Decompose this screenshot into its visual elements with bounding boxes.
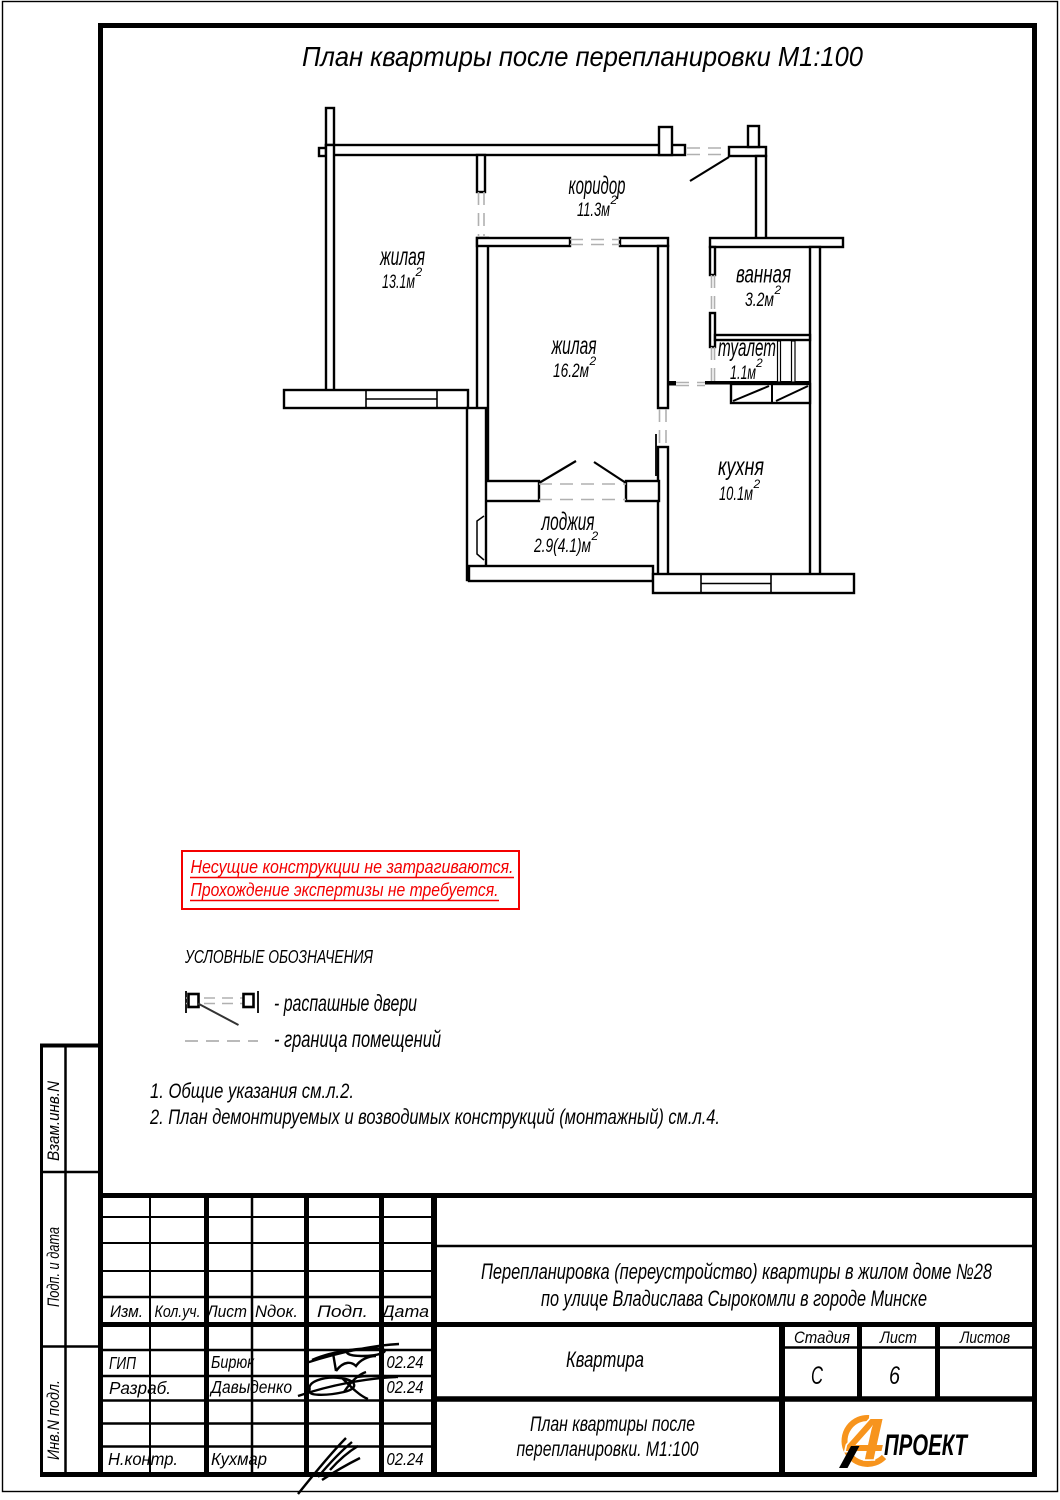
svg-text:2. План демонтируемых и возво: 2. План демонтируемых и возводимых конст… <box>149 1106 720 1129</box>
svg-text:Стадия: Стадия <box>794 1328 850 1347</box>
svg-text:Лист: Лист <box>879 1328 917 1347</box>
svg-text:перепланировки. М1:100: перепланировки. М1:100 <box>517 1438 699 1461</box>
svg-text:1.1м: 1.1м <box>730 362 756 384</box>
svg-text:Несущие конструкции не затраги: Несущие конструкции не затрагиваются. <box>191 857 514 877</box>
svg-text:Разраб.: Разраб. <box>109 1378 171 1398</box>
svg-text:13.1м: 13.1м <box>382 271 415 293</box>
svg-text:Подп.: Подп. <box>317 1303 368 1321</box>
svg-text:Листов: Листов <box>959 1328 1010 1347</box>
svg-text:ванная: ванная <box>736 261 791 289</box>
svg-text:02.24: 02.24 <box>387 1352 424 1372</box>
svg-text:Бирюк: Бирюк <box>211 1352 255 1372</box>
svg-text:ГИП: ГИП <box>109 1353 136 1373</box>
svg-text:Взам.инв.N: Взам.инв.N <box>44 1080 63 1161</box>
svg-text:6: 6 <box>889 1362 900 1390</box>
svg-text:2: 2 <box>415 265 423 279</box>
svg-text:Н.контр.: Н.контр. <box>108 1449 178 1469</box>
svg-text:Инв.N подл.: Инв.N подл. <box>44 1380 63 1460</box>
svg-text:2: 2 <box>774 283 782 297</box>
svg-text:План квартиры после перепланир: План квартиры после перепланировки М1:10… <box>302 41 864 72</box>
svg-text:11.3м: 11.3м <box>577 199 610 221</box>
svg-text:Кухмар: Кухмар <box>211 1449 267 1469</box>
svg-text:ПРОЕКТ: ПРОЕКТ <box>884 1429 969 1462</box>
svg-text:Подп. и дата: Подп. и дата <box>44 1227 63 1307</box>
svg-text:3.2м: 3.2м <box>745 289 774 311</box>
svg-text:Дата: Дата <box>380 1303 429 1321</box>
svg-text:Квартира: Квартира <box>566 1347 644 1372</box>
svg-text:2: 2 <box>755 356 763 370</box>
svg-text:1. Общие указания см.л.2.: 1. Общие указания см.л.2. <box>150 1080 354 1103</box>
svg-text:2.9(4.1)м: 2.9(4.1)м <box>533 535 591 557</box>
svg-text:План квартиры после: План квартиры после <box>530 1413 695 1436</box>
svg-text:4: 4 <box>846 1407 884 1472</box>
svg-text:Перепланировка (переустройств: Перепланировка (переустройство) квартиры… <box>481 1259 993 1284</box>
svg-text:Nдок.: Nдок. <box>255 1303 298 1321</box>
svg-text:С: С <box>811 1362 824 1390</box>
svg-text:2: 2 <box>753 477 761 491</box>
svg-text:Изм.: Изм. <box>110 1303 143 1321</box>
svg-text:Кол.уч.: Кол.уч. <box>155 1303 201 1321</box>
svg-text:2: 2 <box>589 354 597 368</box>
svg-text:УСЛОВНЫЕ ОБОЗНАЧЕНИЯ: УСЛОВНЫЕ ОБОЗНАЧЕНИЯ <box>184 946 373 967</box>
svg-text:лоджия: лоджия <box>540 508 594 536</box>
svg-text:10.1м: 10.1м <box>719 483 753 505</box>
svg-text:Давыденко: Давыденко <box>209 1377 292 1397</box>
svg-text:2: 2 <box>591 529 599 543</box>
svg-text:16.2м: 16.2м <box>553 360 589 382</box>
svg-text:02.24: 02.24 <box>387 1449 424 1469</box>
svg-text:Прохождение экспертизы не треб: Прохождение экспертизы не требуется. <box>191 880 499 900</box>
svg-text:02.24: 02.24 <box>387 1377 424 1397</box>
svg-text:туалет: туалет <box>718 334 776 362</box>
svg-text:по улице Владислава Сырокомли: по улице Владислава Сырокомли в городе М… <box>541 1286 927 1311</box>
svg-text:Лист: Лист <box>206 1303 247 1321</box>
svg-text:- распашные двери: - распашные двери <box>274 990 417 1016</box>
svg-text:2: 2 <box>610 193 618 207</box>
svg-text:- граница помещений: - граница помещений <box>274 1026 441 1052</box>
